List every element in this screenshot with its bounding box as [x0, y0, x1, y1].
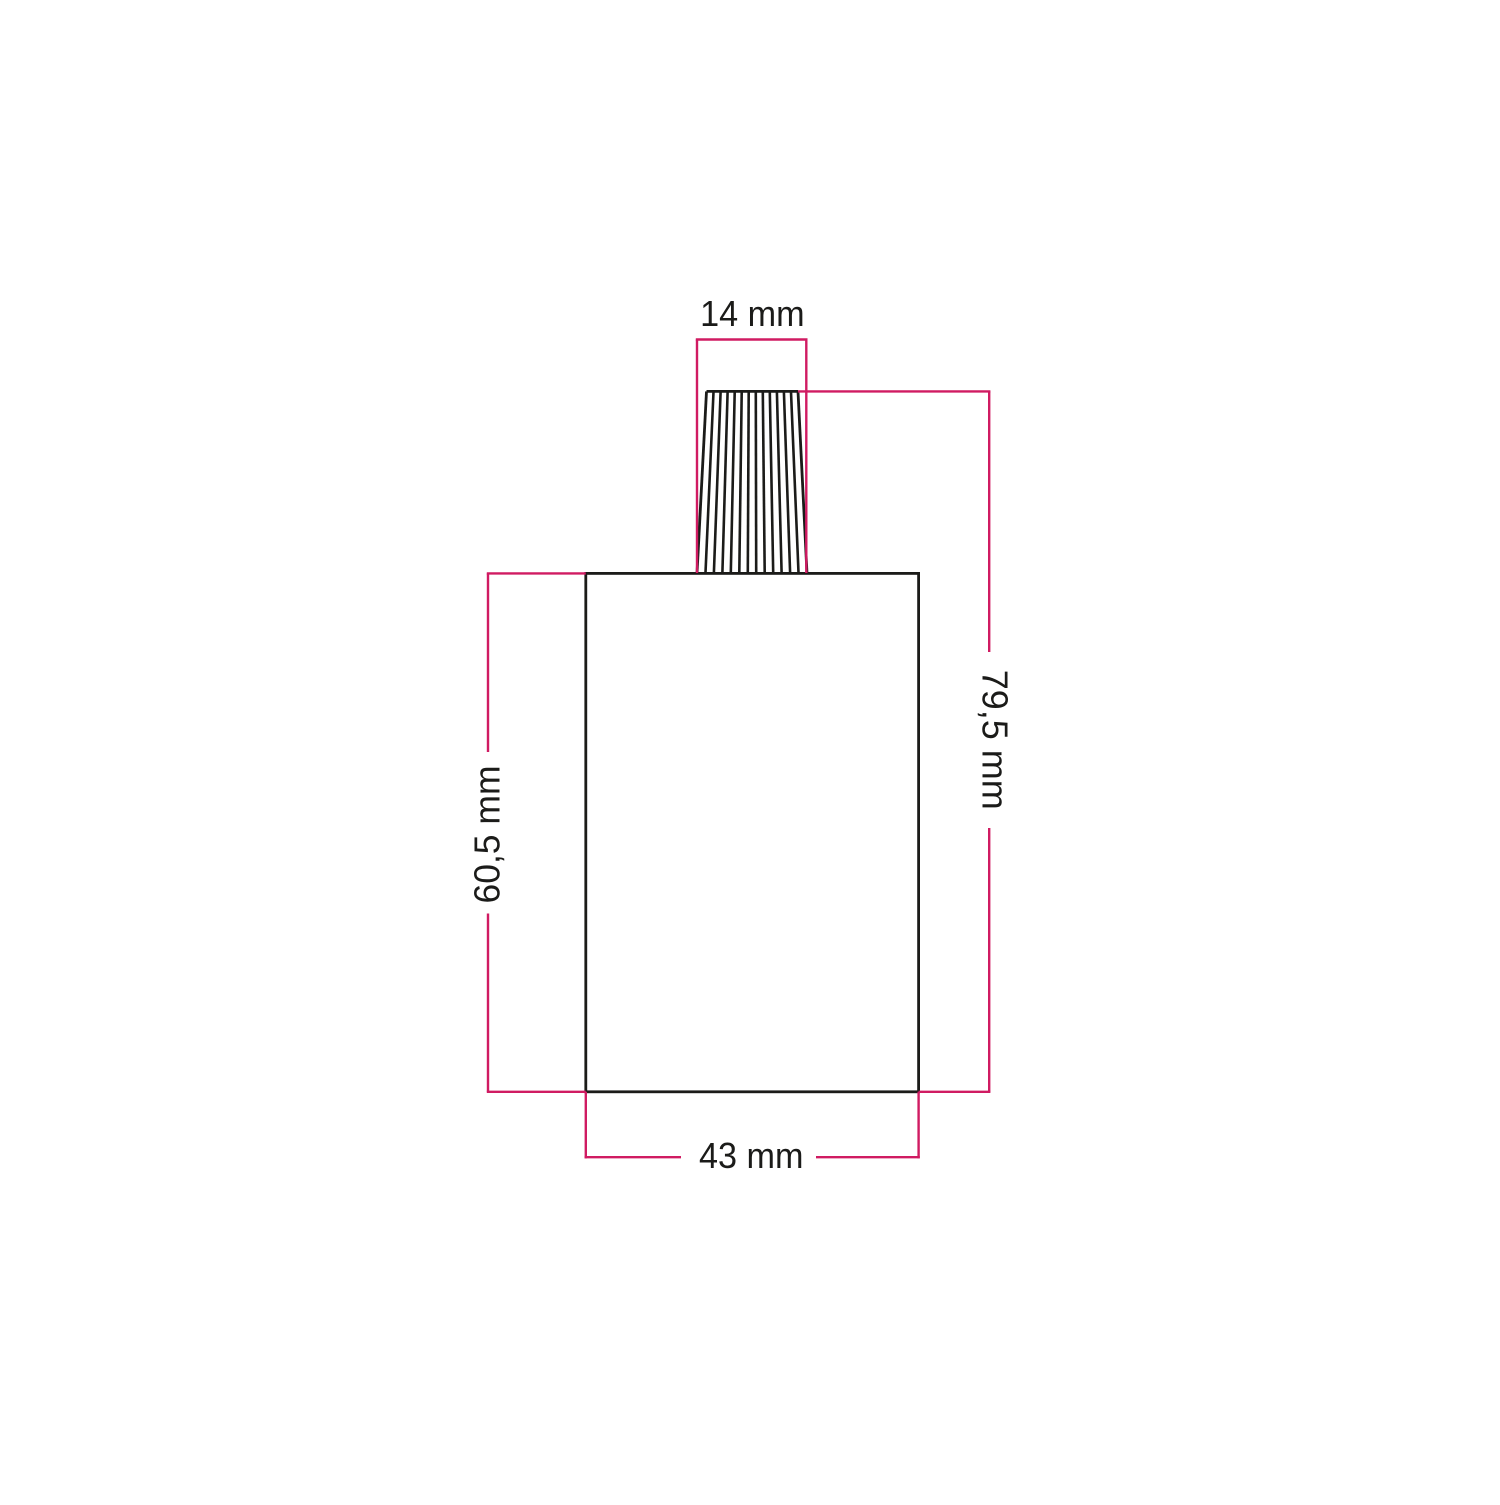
svg-text:43 mm: 43 mm	[699, 1135, 804, 1176]
svg-text:14 mm: 14 mm	[700, 293, 805, 334]
svg-text:60,5 mm: 60,5 mm	[467, 766, 508, 904]
svg-text:79,5 mm: 79,5 mm	[974, 670, 1015, 810]
